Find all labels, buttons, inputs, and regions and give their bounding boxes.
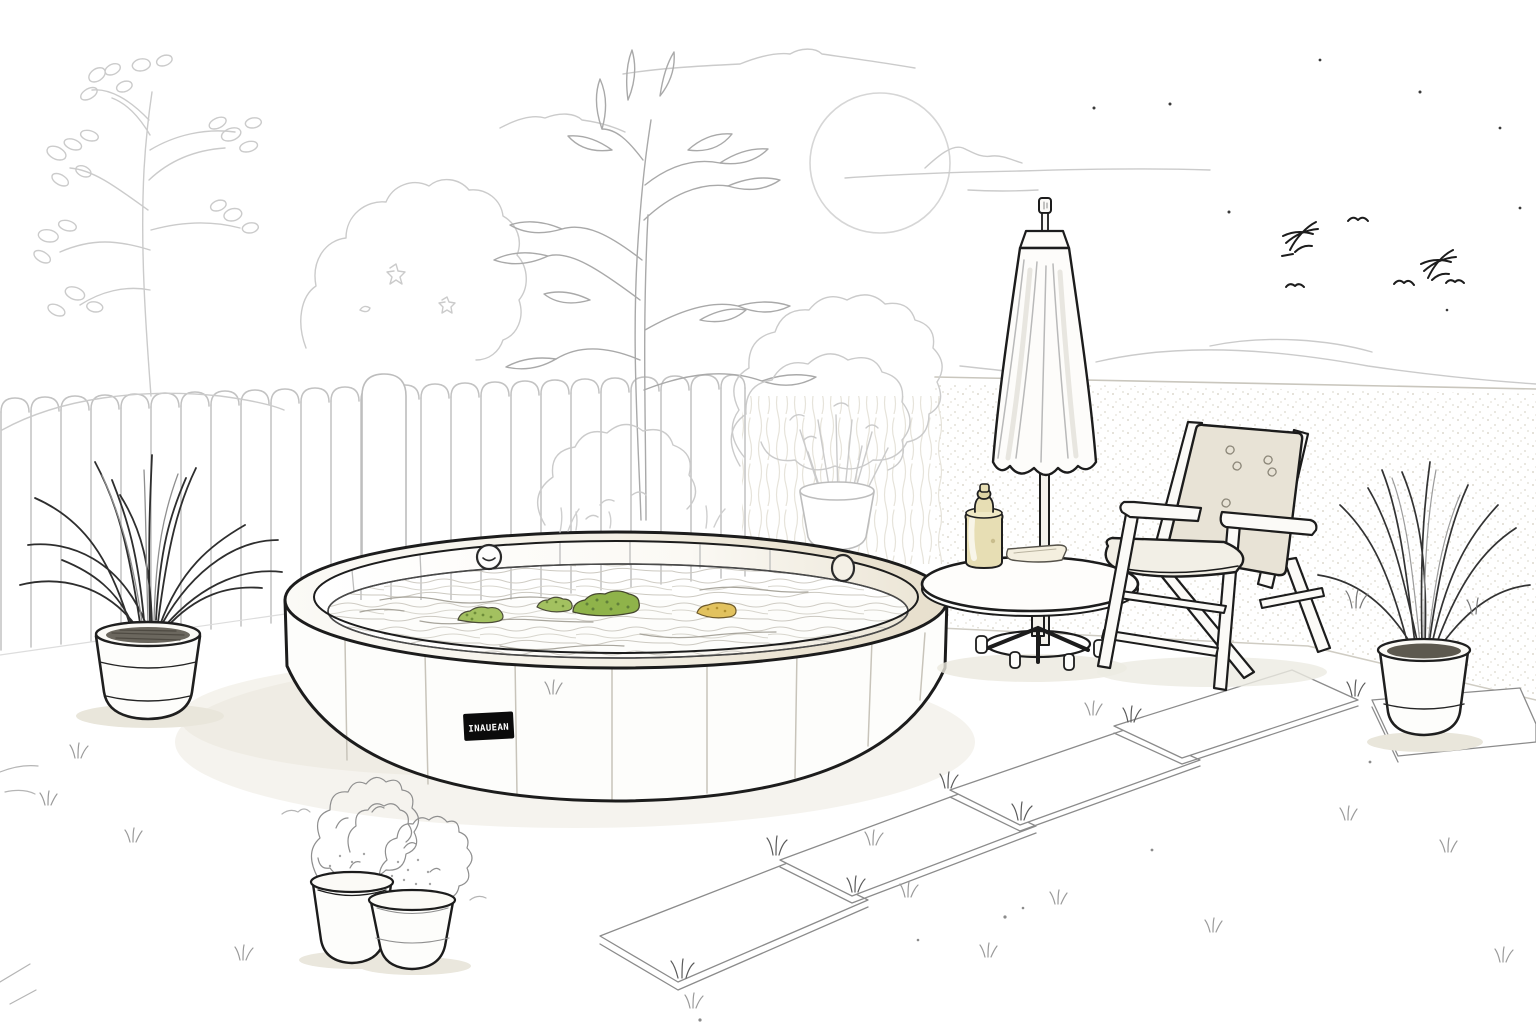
left-tree <box>34 55 261 396</box>
sun-icon <box>810 93 950 233</box>
plant-pot <box>1380 652 1468 735</box>
bird-icon <box>1421 250 1456 280</box>
birds <box>1282 218 1464 287</box>
left-tree-leaves <box>34 55 261 316</box>
clouds <box>500 49 1210 191</box>
bird-icon <box>1282 254 1293 256</box>
pool-brand-label: INAUEAN <box>463 711 514 741</box>
pool-brand-label-text: INAUEAN <box>468 723 509 735</box>
fence-post <box>362 374 406 562</box>
umbrella-cap <box>1020 231 1069 248</box>
tabletop <box>922 557 1138 611</box>
bird-icon <box>1283 222 1318 252</box>
stars <box>1093 59 1522 312</box>
plant-pot <box>96 636 200 719</box>
pot-soil <box>1387 644 1461 659</box>
sky <box>500 49 1521 311</box>
pool-valve <box>477 545 501 569</box>
above-ground-pool: INAUEAN <box>285 506 947 801</box>
bird-icon <box>1348 218 1368 221</box>
bird-icon <box>1446 280 1464 283</box>
grass-behind-rim <box>560 506 725 532</box>
chair-shadow <box>1097 657 1327 687</box>
bird-icon <box>1286 284 1304 287</box>
backyard-illustration: INAUEAN <box>0 0 1536 1024</box>
umbrella-finial <box>1039 198 1051 213</box>
bird-icon <box>1394 281 1414 285</box>
round-bush <box>301 180 526 360</box>
bottle-stopper <box>980 484 989 492</box>
pool-valve <box>832 555 854 581</box>
illustration-canvas: INAUEAN <box>0 0 1536 1024</box>
